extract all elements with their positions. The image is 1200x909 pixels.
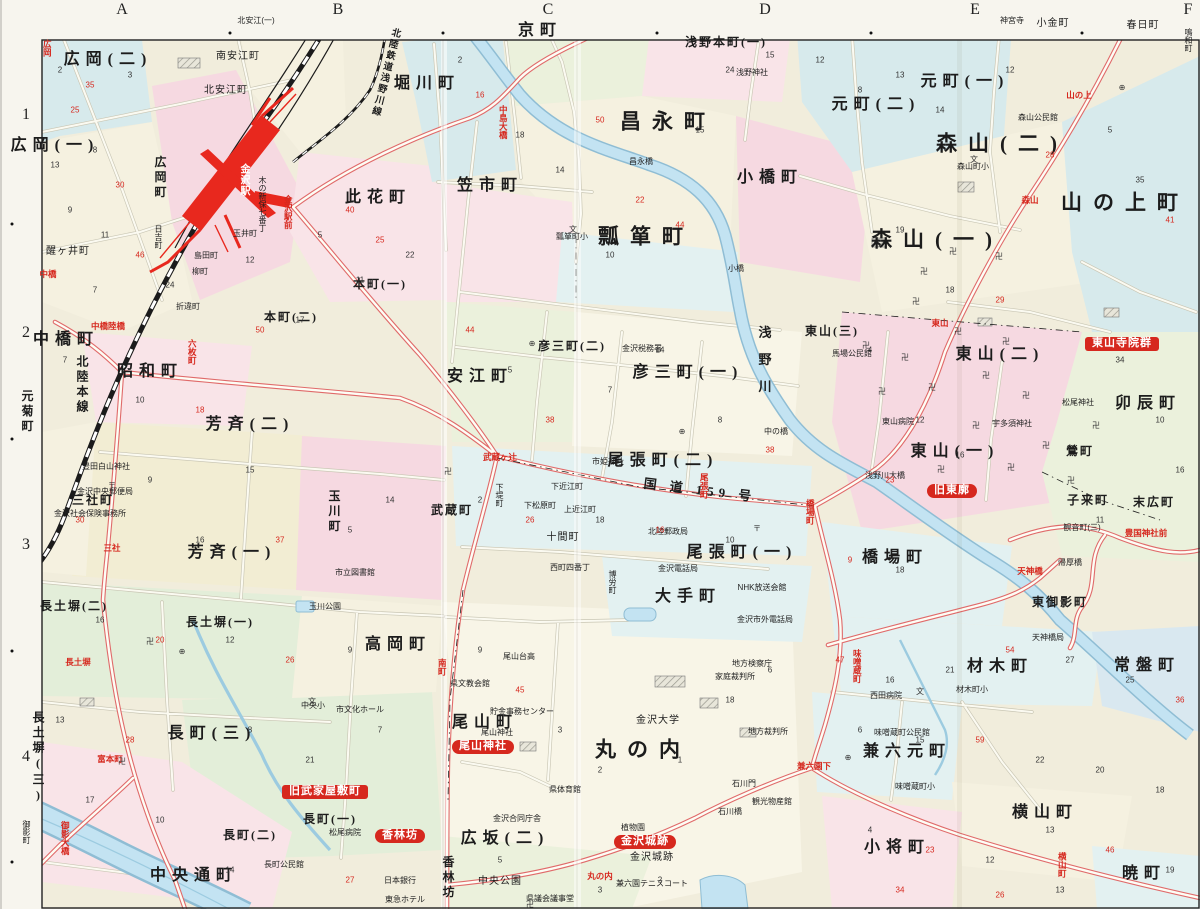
castle-moat: [624, 608, 656, 621]
map-base: [0, 0, 1200, 909]
map-page: 広岡(二)広岡(一)広岡町広岡南安江町北安江町北安江(一)此花町本町(一)本町(…: [0, 0, 1200, 909]
tamagawa-park-pond: [296, 601, 314, 612]
